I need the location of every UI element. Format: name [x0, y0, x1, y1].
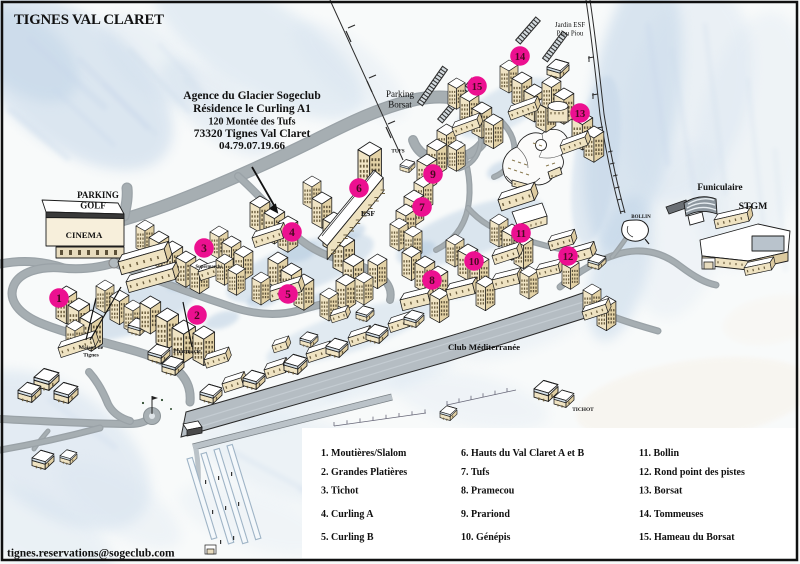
svg-text:Funiculaire: Funiculaire — [697, 182, 742, 192]
svg-text:Maison de: Maison de — [79, 345, 104, 351]
svg-text:BOLLIN: BOLLIN — [631, 215, 651, 220]
svg-text:8: 8 — [429, 275, 435, 287]
svg-text:STGM: STGM — [739, 201, 768, 212]
svg-text:Parking: Parking — [386, 89, 414, 99]
svg-text:Pharmacie: Pharmacie — [173, 349, 201, 355]
svg-text:TUFS: TUFS — [391, 149, 404, 155]
svg-text:Piou Piou: Piou Piou — [557, 31, 584, 38]
svg-text:15. Hameau du Borsat: 15. Hameau du Borsat — [639, 532, 735, 543]
svg-text:15: 15 — [472, 82, 483, 93]
svg-text:CINEMA: CINEMA — [66, 230, 103, 240]
svg-text:8. Pramecou: 8. Pramecou — [461, 486, 515, 497]
svg-text:04.79.07.19.66: 04.79.07.19.66 — [219, 140, 286, 152]
svg-text:2: 2 — [194, 310, 200, 322]
svg-text:13: 13 — [575, 109, 586, 120]
svg-text:6. Hauts du Val Claret A et B: 6. Hauts du Val Claret A et B — [461, 448, 584, 459]
svg-text:Supermarché: Supermarché — [196, 265, 223, 270]
svg-text:Résidence le Curling A1: Résidence le Curling A1 — [193, 103, 311, 115]
svg-text:10. Génépis: 10. Génépis — [461, 532, 511, 543]
svg-text:4. Curling A: 4. Curling A — [321, 509, 374, 520]
svg-text:3: 3 — [201, 243, 207, 255]
svg-text:Agence du Glacier Sogeclub: Agence du Glacier Sogeclub — [183, 90, 320, 102]
svg-text:10: 10 — [469, 257, 480, 268]
svg-text:Borsat: Borsat — [388, 100, 412, 110]
svg-text:9. Prariond: 9. Prariond — [461, 509, 510, 520]
svg-text:120 Montée des Tufs: 120 Montée des Tufs — [209, 117, 296, 128]
svg-text:6: 6 — [356, 183, 362, 195]
svg-text:11: 11 — [516, 229, 526, 240]
svg-text:GOLF: GOLF — [80, 201, 106, 211]
svg-text:PARKING: PARKING — [77, 190, 119, 200]
svg-text:ESF: ESF — [361, 209, 376, 218]
svg-text:5. Curling B: 5. Curling B — [321, 532, 374, 543]
svg-text:7: 7 — [419, 202, 425, 214]
svg-text:4: 4 — [289, 227, 295, 239]
svg-text:Club Méditerranée: Club Méditerranée — [448, 342, 520, 352]
svg-text:14: 14 — [515, 52, 526, 63]
svg-text:13. Borsat: 13. Borsat — [639, 486, 683, 497]
svg-text:tignes.reservations@sogeclub.c: tignes.reservations@sogeclub.com — [7, 548, 175, 560]
svg-text:TICHOT: TICHOT — [572, 407, 594, 413]
svg-text:73320 Tignes Val Claret: 73320 Tignes Val Claret — [194, 128, 311, 140]
svg-text:3. Tichot: 3. Tichot — [321, 486, 359, 497]
svg-text:9: 9 — [430, 169, 436, 181]
svg-text:12: 12 — [563, 252, 574, 263]
svg-text:Tignes: Tignes — [83, 353, 99, 359]
svg-text:11. Bollin: 11. Bollin — [639, 448, 679, 459]
svg-text:7. Tufs: 7. Tufs — [461, 467, 489, 478]
svg-text:14. Tommeuses: 14. Tommeuses — [639, 509, 704, 520]
svg-text:1: 1 — [56, 293, 62, 305]
svg-text:2. Grandes Platières: 2. Grandes Platières — [321, 467, 407, 478]
svg-text:1. Moutières/Slalom: 1. Moutières/Slalom — [321, 448, 407, 459]
svg-text:Jardin ESF: Jardin ESF — [555, 22, 585, 29]
svg-text:12. Rond point des pistes: 12. Rond point des pistes — [639, 467, 745, 478]
svg-text:5: 5 — [285, 289, 291, 301]
svg-text:TIGNES VAL CLARET: TIGNES VAL CLARET — [14, 12, 164, 28]
